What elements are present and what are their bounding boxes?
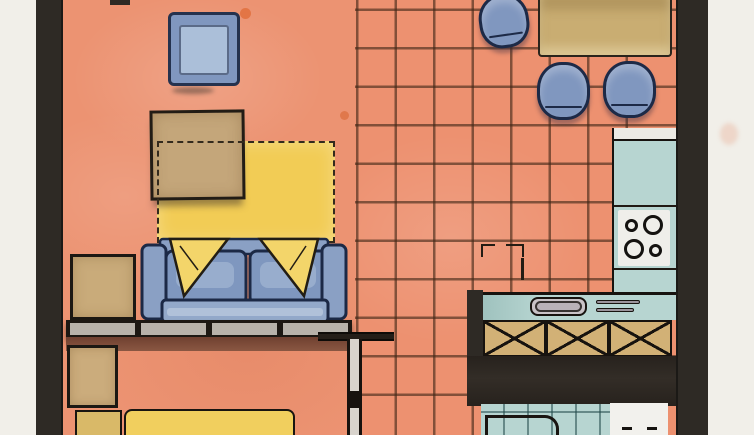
bathroom-fixture — [610, 403, 668, 435]
console-panel — [70, 323, 135, 335]
cabinet-x-door — [609, 320, 672, 357]
burner-icon — [625, 219, 638, 232]
watercolor-blot — [720, 123, 738, 145]
sofa — [140, 236, 348, 326]
plan-symbol-bracket — [481, 244, 495, 257]
bed — [75, 409, 295, 435]
drainboard-bar — [596, 308, 634, 312]
bed-blanket — [124, 409, 295, 435]
dining-stool — [537, 62, 590, 120]
dining-stool — [603, 61, 656, 118]
exterior-wall-left — [36, 0, 63, 435]
plan-symbol-tick — [521, 258, 524, 280]
cabinet-x-door — [483, 320, 546, 357]
burner-icon — [624, 239, 644, 259]
counter-edge — [614, 128, 676, 141]
watercolor-blot — [240, 8, 251, 19]
armchair-shadow — [172, 87, 214, 94]
exterior-wall-right — [676, 0, 708, 435]
stool-seam — [545, 106, 582, 109]
dining-table — [538, 0, 672, 57]
kitchen-sink — [530, 297, 587, 316]
stool-seam — [611, 104, 648, 107]
counter-divider — [614, 205, 676, 207]
shower-enclosure-line — [485, 415, 559, 435]
burner-icon — [643, 215, 663, 235]
base-cabinets — [483, 320, 672, 357]
burner-icon — [649, 244, 662, 257]
coffee-table — [149, 109, 245, 200]
bedroom-door-jamb — [347, 391, 362, 408]
nightstand — [67, 345, 118, 408]
plan-symbol-bracket — [506, 244, 524, 257]
fixture-mark — [647, 427, 657, 430]
stool-seam — [489, 31, 523, 38]
bathroom-floor — [481, 404, 610, 435]
watercolor-blot — [340, 111, 349, 120]
floor-plan — [0, 0, 754, 435]
armchair — [168, 12, 240, 86]
counter-divider — [614, 268, 676, 270]
cooktop — [618, 210, 670, 266]
cabinet-x-door — [546, 320, 609, 357]
kitchen-stub-wall — [467, 290, 483, 358]
bed-bench — [75, 410, 122, 435]
console-panel — [141, 323, 206, 335]
sink-basin — [535, 301, 582, 312]
sideboard-console — [66, 320, 352, 338]
bathroom-wall-band — [467, 356, 708, 406]
armchair-seat-cushion — [179, 25, 229, 75]
fixture-mark — [622, 427, 632, 430]
wall-stub-top — [110, 0, 130, 5]
console-panel — [212, 323, 277, 335]
drainboard-bar — [596, 300, 640, 304]
side-table — [70, 254, 136, 320]
bedroom-side-wall — [347, 339, 362, 435]
